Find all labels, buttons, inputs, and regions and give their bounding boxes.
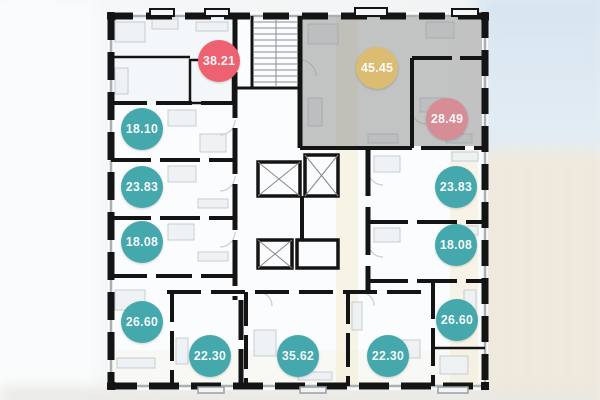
unit-area-badge[interactable]: 23.83 bbox=[435, 166, 477, 208]
unit-area-badge[interactable]: 28.49 bbox=[426, 98, 468, 140]
unit-area-badge[interactable]: 18.10 bbox=[121, 108, 163, 150]
unit-area-badge[interactable]: 45.45 bbox=[356, 47, 398, 89]
unit-area-badge[interactable]: 18.08 bbox=[121, 221, 163, 263]
unit-area-badge[interactable]: 22.30 bbox=[367, 335, 409, 377]
unit-area-badge[interactable]: 26.60 bbox=[121, 301, 163, 343]
unit-area-badge[interactable]: 35.62 bbox=[277, 335, 319, 377]
unit-area-badge[interactable]: 38.21 bbox=[198, 40, 240, 82]
unit-area-badge[interactable]: 26.60 bbox=[436, 299, 478, 341]
floor-plan-page: 38.21 45.45 28.49 18.10 23.83 18.08 26.6… bbox=[0, 0, 600, 400]
unit-area-badge[interactable]: 22.30 bbox=[189, 335, 231, 377]
unit-area-badge[interactable]: 23.83 bbox=[121, 166, 163, 208]
unit-area-badge[interactable]: 18.08 bbox=[435, 224, 477, 266]
